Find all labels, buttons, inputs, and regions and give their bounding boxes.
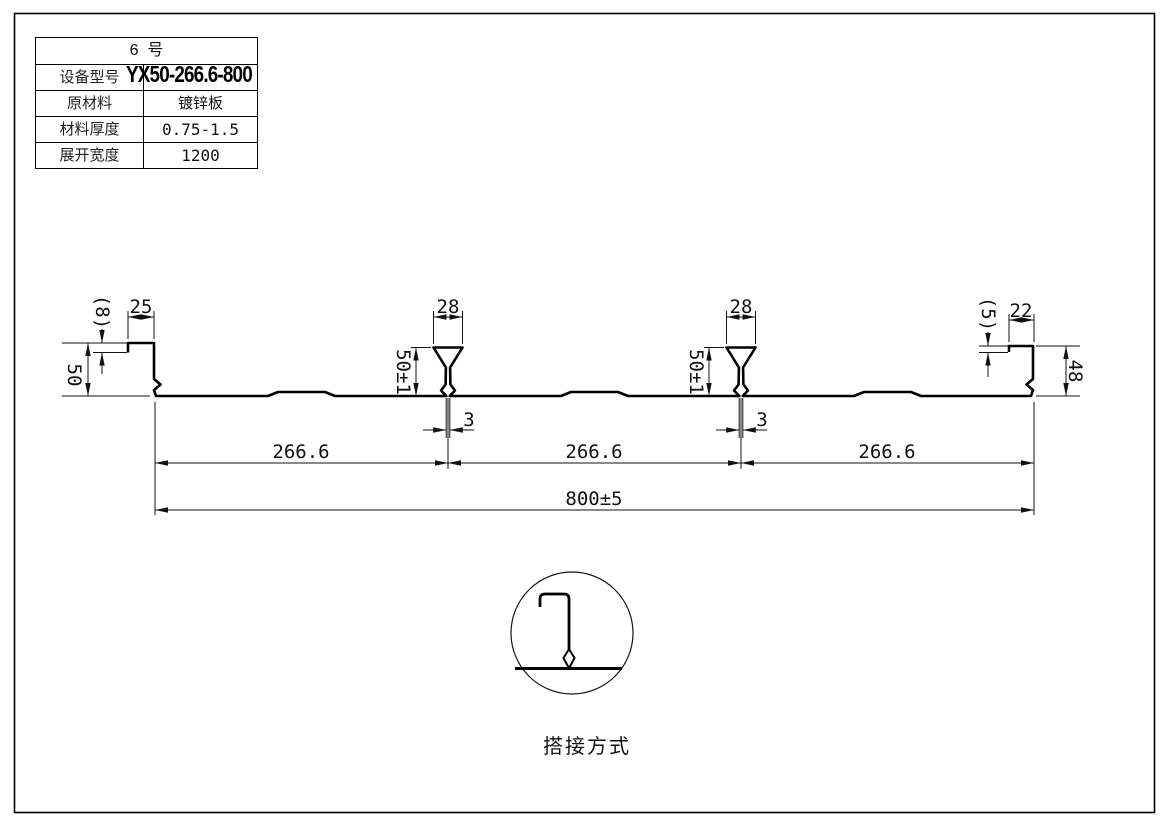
dim-span2-label: 266.6 — [565, 441, 622, 463]
dim-overall-width-label: 800±5 — [565, 488, 622, 510]
dimension-lines — [62, 311, 1080, 515]
dim-rib2-height-label: 50±1 — [685, 349, 707, 395]
title-block-row-material: 原材料 镀锌板 — [36, 90, 257, 116]
dim-left-step-label: (8) — [91, 295, 113, 329]
dim-left-height-label: 50 — [63, 364, 85, 387]
material-value: 镀锌板 — [144, 91, 257, 116]
engineering-drawing-page: 25 (8) 50 28 50±1 3 28 50±1 3 22 (5) 48 … — [0, 0, 1169, 827]
material-label: 原材料 — [36, 91, 144, 116]
dim-rib1-slot-label: 3 — [463, 409, 474, 431]
title-block: 6 号 设备型号 原材料 镀锌板 材料厚度 0.75-1.5 展开宽度 1200 — [35, 37, 258, 169]
dim-rib1-height-label: 50±1 — [392, 349, 414, 395]
unfold-width-label: 展开宽度 — [36, 143, 144, 168]
dim-right-height-label: 48 — [1064, 360, 1086, 383]
thickness-value: 0.75-1.5 — [144, 117, 257, 142]
dim-rib1-top-width-label: 28 — [437, 296, 460, 318]
dim-right-step-label: (5) — [977, 297, 999, 331]
dim-rib2-top-width-label: 28 — [730, 296, 753, 318]
dim-rib2-slot-label: 3 — [756, 409, 767, 431]
unfold-width-value: 1200 — [144, 143, 257, 168]
thickness-label: 材料厚度 — [36, 117, 144, 142]
dim-right-lip-width-label: 22 — [1010, 300, 1033, 322]
profile-outline — [128, 343, 1033, 396]
title-block-row-thickness: 材料厚度 0.75-1.5 — [36, 116, 257, 142]
dim-span3-label: 266.6 — [858, 441, 915, 463]
detail-circle — [511, 572, 633, 694]
detail-caption: 搭接方式 — [543, 735, 631, 758]
model-number-text: YX50-266.6-800 — [126, 61, 252, 87]
dim-left-lip-width-label: 25 — [130, 296, 153, 318]
title-block-row-width: 展开宽度 1200 — [36, 142, 257, 168]
dim-span1-label: 266.6 — [272, 441, 329, 463]
detail-joint-shape — [515, 594, 622, 669]
